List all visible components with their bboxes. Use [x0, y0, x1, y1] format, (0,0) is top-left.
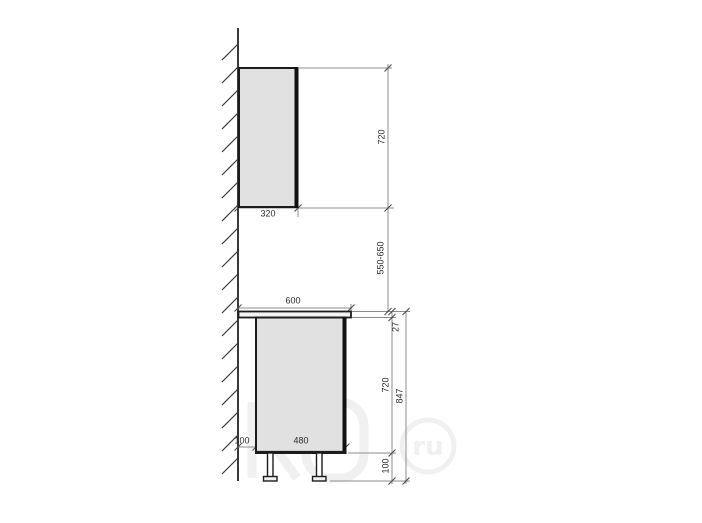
dim-base-cabinet-height: 720 [382, 377, 391, 392]
wall [222, 28, 238, 481]
watermark-circle-text: ru [412, 432, 443, 462]
dim-wall-cabinet-height: 720 [378, 129, 387, 144]
dim-base-total-height: 847 [396, 388, 405, 403]
dim-countertop-depth: 600 [285, 297, 300, 306]
leg-foot [264, 477, 278, 482]
leg-foot [313, 477, 327, 482]
dim-base-cabinet-depth: 480 [293, 437, 308, 446]
wall-cabinet [239, 67, 297, 208]
dim-base-back-gap: 100 [234, 437, 249, 446]
dim-wall-cabinet-depth: 320 [260, 210, 275, 219]
dim-countertop-thickness: 27 [391, 322, 400, 332]
elevation-drawing: ru [0, 0, 702, 523]
drawing-canvas: ru [0, 0, 702, 523]
dim-wall-to-counter-gap: 550-650 [377, 241, 386, 274]
dim-leg-height: 100 [382, 458, 391, 473]
leg-stem [268, 453, 274, 477]
leg-stem [317, 453, 323, 477]
base-cabinet [256, 318, 346, 454]
